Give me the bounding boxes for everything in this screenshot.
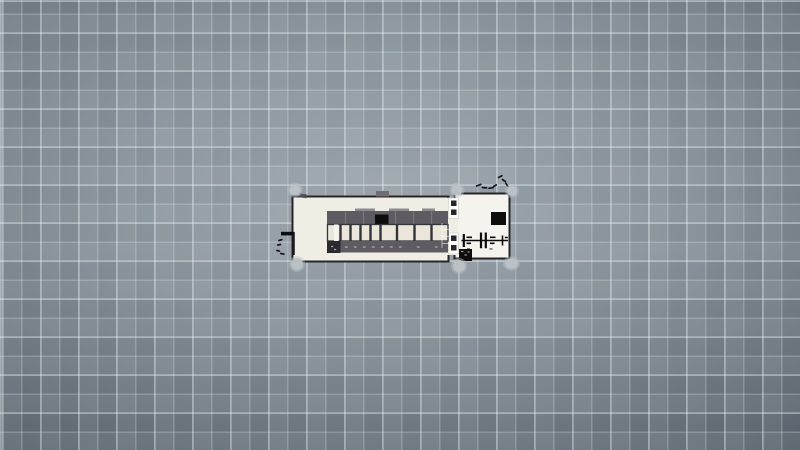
table-cell-row[interactable] [328,225,449,242]
dashed-swing-marks [477,176,508,189]
dashed-swing-marks [277,240,284,254]
pillar[interactable] [503,257,520,271]
top-wall-door[interactable] [376,191,389,197]
dark-end-block[interactable] [327,241,341,253]
pillar[interactable] [451,258,467,274]
panel-square-icon [451,245,457,251]
door-marks-left [277,232,294,255]
door-marks-top-right [477,176,508,189]
pillar[interactable] [505,184,519,198]
room-right[interactable] [455,194,510,259]
black-table[interactable] [491,212,506,225]
game-world[interactable] [0,0,800,450]
panel-square-icon [451,236,457,242]
pillar[interactable] [450,183,465,198]
pillar[interactable] [288,183,303,198]
pillar[interactable] [289,256,305,272]
table-block[interactable] [327,209,450,254]
panel-square-icon [451,210,457,216]
world-overlay [0,0,800,450]
door-bar[interactable] [281,232,294,236]
panel-square-icon [451,201,457,207]
